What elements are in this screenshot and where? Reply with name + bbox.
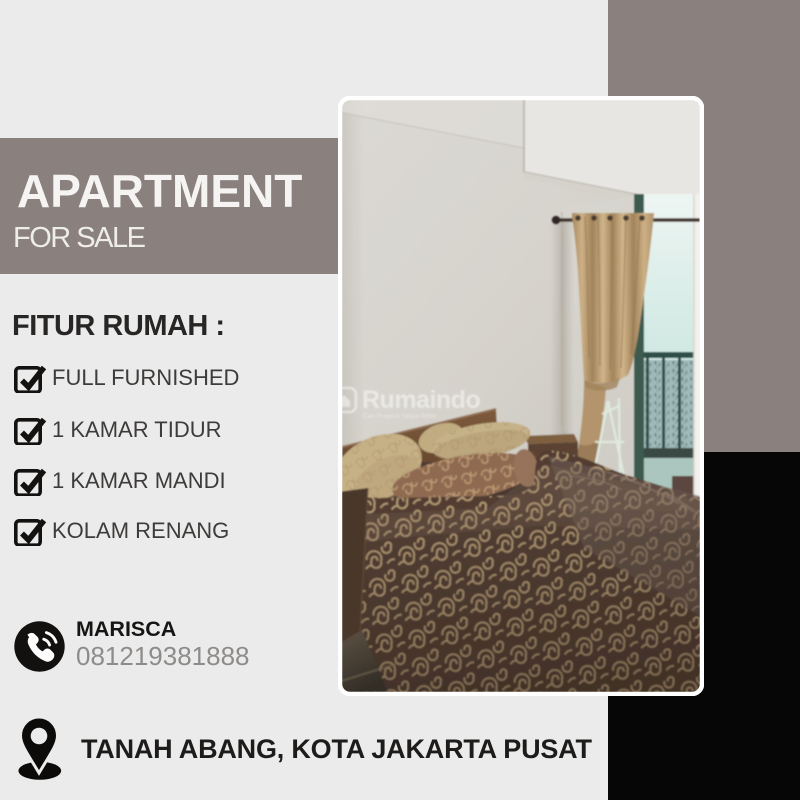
svg-text:Cari Properti Tanpa Ribet: Cari Properti Tanpa Ribet [363, 413, 436, 420]
svg-text:Rumaindo: Rumaindo [362, 386, 480, 414]
